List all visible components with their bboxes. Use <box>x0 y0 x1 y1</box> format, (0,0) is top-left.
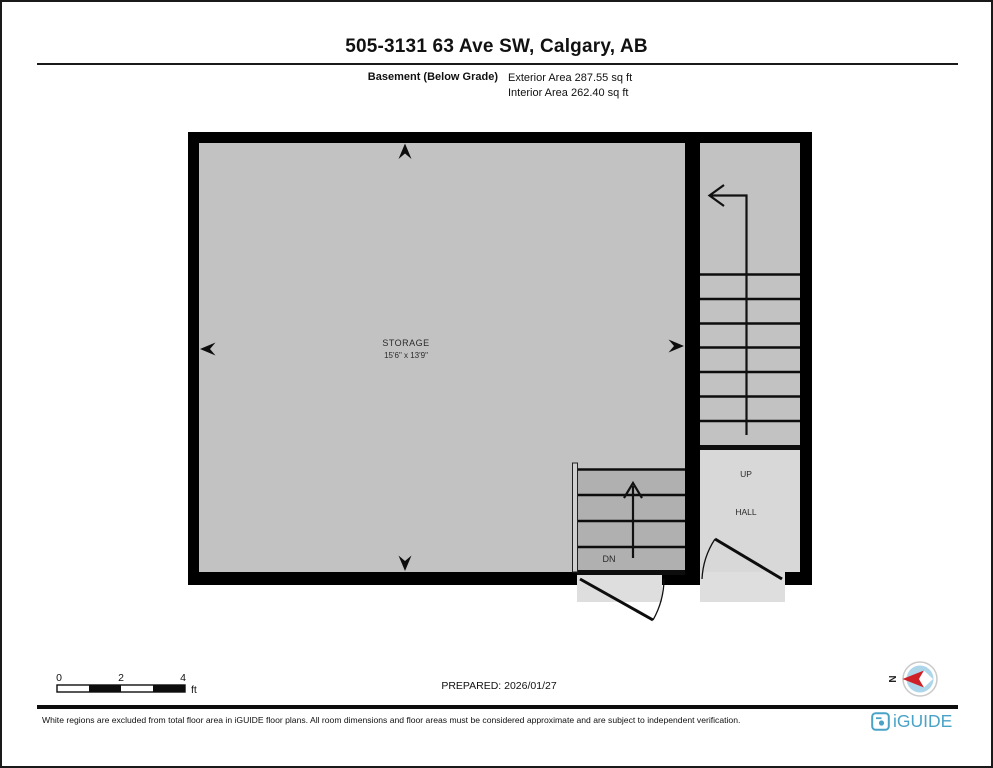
iguide-logo-icon <box>871 712 890 731</box>
storage-door-threshold <box>577 575 662 602</box>
floor-plan: DN <box>188 132 812 620</box>
floor-plan-page: 505-3131 63 Ave SW, Calgary, AB Basement… <box>0 0 993 768</box>
staircase-down: DN <box>573 463 686 575</box>
hall-room-label: HALL <box>735 507 757 517</box>
footer-disclaimer: White regions are excluded from total fl… <box>42 715 842 725</box>
up-label: UP <box>740 469 752 479</box>
compass-north-label: N <box>888 675 899 682</box>
stair-bottom-edge <box>700 445 800 450</box>
storage-room-dimensions: 15'6" x 13'9" <box>384 351 428 360</box>
scale-tick-0: 0 <box>56 672 62 684</box>
iguide-logo: iGUIDE <box>871 711 952 732</box>
scale-unit-label: ft <box>191 684 197 696</box>
stairwell-floor <box>700 143 800 445</box>
storage-room-label: STORAGE <box>382 338 429 348</box>
stair-bottom-edge <box>577 570 685 575</box>
footer-divider <box>37 705 958 709</box>
prepared-date: PREPARED: 2026/01/27 <box>441 680 557 692</box>
scale-bar: 0 2 4 ft <box>56 672 197 696</box>
compass-icon: N <box>888 662 937 696</box>
stairs-down-label: DN <box>603 554 616 564</box>
hall-door-threshold <box>700 572 785 602</box>
scale-tick-4: 4 <box>180 672 186 684</box>
scale-bar-segment <box>153 685 185 692</box>
scale-tick-2: 2 <box>118 672 124 684</box>
floor-plan-drawing: DN <box>2 2 993 768</box>
stair-railing <box>573 463 578 572</box>
iguide-brand-text: iGUIDE <box>893 711 952 732</box>
scale-bar-segment <box>89 685 121 692</box>
